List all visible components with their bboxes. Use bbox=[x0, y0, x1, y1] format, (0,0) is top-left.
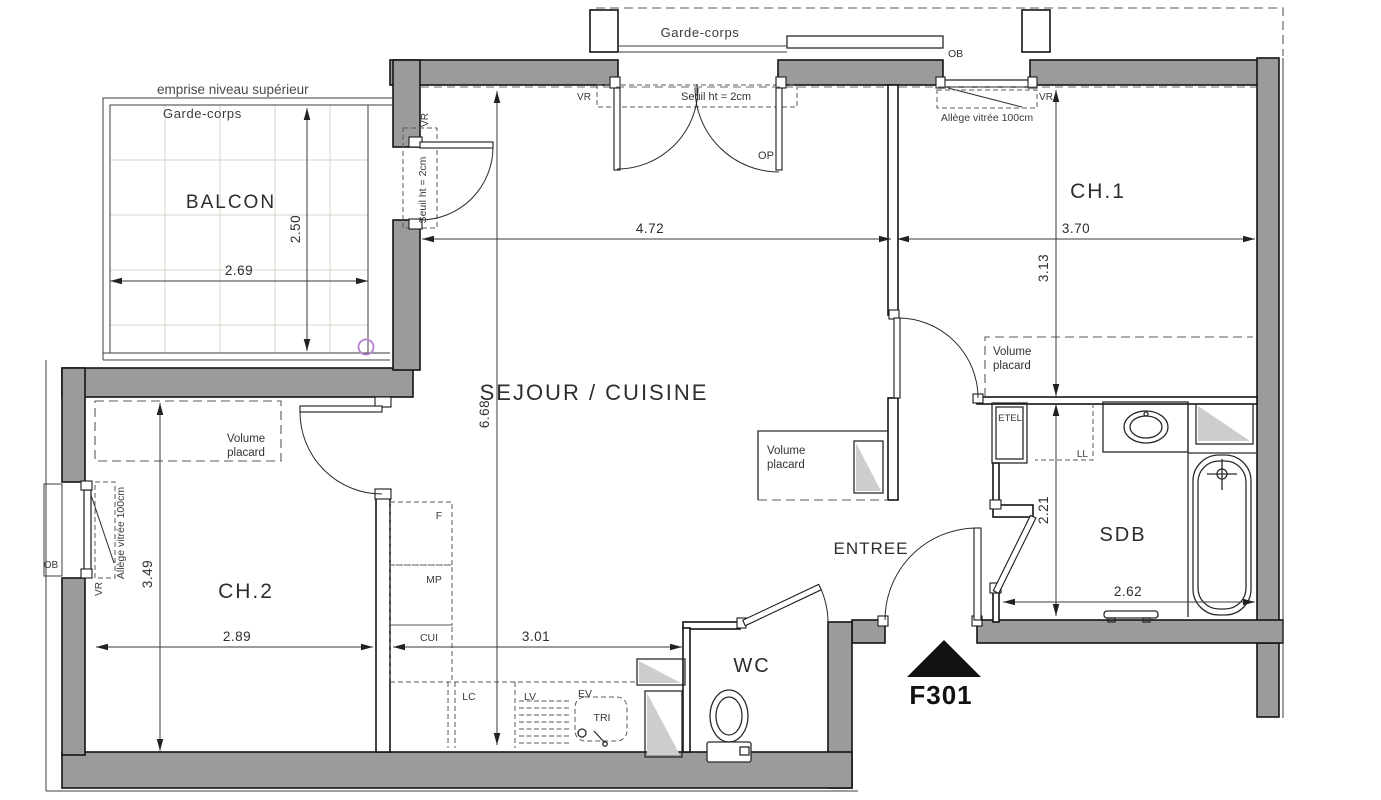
door-jamb bbox=[610, 77, 620, 88]
ob-label-top: OB bbox=[948, 48, 963, 60]
room-label-balcon: BALCON bbox=[186, 192, 276, 213]
floor-plan-page: Garde-corps OB emprise niveau supérieur bbox=[0, 0, 1381, 800]
wall-top-mid-segment bbox=[778, 60, 943, 85]
wall-sdb-west-lower bbox=[993, 592, 999, 622]
north-triangle-icon bbox=[907, 640, 981, 677]
allege-label: Allège vitrée 100cm bbox=[115, 487, 127, 579]
etel-cabinet bbox=[992, 403, 1027, 463]
door-ch2 bbox=[300, 397, 391, 499]
door-leaf-left bbox=[614, 88, 620, 170]
door-swing-arc bbox=[300, 412, 382, 494]
window-jamb bbox=[1028, 77, 1037, 88]
door-swing-arc bbox=[820, 587, 828, 623]
room-label-ch2: CH.2 bbox=[218, 580, 274, 603]
unit-id-label: F301 bbox=[909, 680, 972, 710]
dim-sdb-depth: 2.21 bbox=[1036, 496, 1051, 524]
room-label-wc: WC bbox=[733, 655, 770, 677]
door-leaf bbox=[300, 406, 382, 412]
wall-right-stub bbox=[1257, 643, 1279, 717]
door-swing-arc bbox=[898, 318, 978, 398]
basin-tap-icon bbox=[1144, 412, 1148, 416]
wall-sejour-ch1 bbox=[888, 85, 898, 315]
duct-triangle bbox=[856, 443, 881, 491]
ev-label: EV bbox=[578, 688, 592, 700]
windows: VR Seuil ht = 2cm OP Allège vitrée 100cm… bbox=[44, 77, 1053, 596]
door-leaf bbox=[743, 584, 822, 625]
volume-placard-label: placard bbox=[227, 447, 265, 459]
vr-label: VR bbox=[577, 92, 591, 103]
lc-label: LC bbox=[462, 691, 476, 703]
wall-sejour-hall bbox=[888, 398, 898, 500]
wall-wc-west bbox=[683, 628, 690, 752]
window-jamb bbox=[936, 77, 945, 88]
door-wc bbox=[737, 584, 828, 628]
allege-dashed-box bbox=[95, 482, 115, 578]
wall-ch2-north bbox=[62, 368, 413, 397]
dim-balcon-width: 2.69 bbox=[225, 263, 253, 278]
dim-balcon-depth: 2.50 bbox=[288, 215, 303, 243]
dim-ch1-width: 3.70 bbox=[1062, 221, 1090, 236]
door-jamb bbox=[776, 77, 786, 88]
wall-right bbox=[1257, 58, 1279, 643]
seuil-label: Seuil ht = 2cm bbox=[681, 91, 751, 103]
wall-wc-north bbox=[683, 622, 740, 629]
upper-level-outline: Garde-corps OB bbox=[590, 8, 1283, 60]
guardrail-label-balcony: Garde-corps bbox=[163, 106, 242, 121]
sink-tap-icon bbox=[603, 742, 607, 746]
volume-placard-label: placard bbox=[767, 459, 805, 471]
wall-top-left-segment bbox=[390, 60, 618, 85]
volume-placard-label: Volume bbox=[993, 346, 1031, 358]
op-label: OP bbox=[758, 150, 774, 162]
volume-placard-label: Volume bbox=[227, 433, 265, 445]
volume-placard-label: Volume bbox=[767, 445, 805, 457]
etel-label: ETEL bbox=[998, 413, 1022, 424]
floor-plan-svg: Garde-corps OB emprise niveau supérieur bbox=[0, 0, 1381, 800]
wall-sejour-west-lower bbox=[393, 220, 420, 370]
placards: Volume placard Volume placard Volume pla… bbox=[95, 337, 1253, 500]
room-label-sdb: SDB bbox=[1099, 524, 1146, 546]
window-glazing bbox=[943, 80, 1030, 87]
french-door-sejour: VR Seuil ht = 2cm OP bbox=[577, 77, 797, 172]
upper-pier-left bbox=[590, 10, 618, 52]
door-swing-arc bbox=[420, 147, 493, 220]
dim-sdb-width: 2.62 bbox=[1114, 584, 1142, 599]
balcony-drain-circle bbox=[359, 340, 374, 355]
seuil-label: Seuil ht = 2cm bbox=[417, 156, 429, 223]
room-label-entree: ENTREE bbox=[834, 539, 909, 558]
dim-ch1-depth: 3.13 bbox=[1036, 254, 1051, 282]
dim-cuisine-width: 3.01 bbox=[522, 629, 550, 644]
allege-dashed-box bbox=[937, 90, 1037, 108]
sink-tap-icon bbox=[578, 729, 586, 737]
fridge-box bbox=[390, 502, 452, 565]
window-opening-line bbox=[948, 88, 1022, 107]
wall-ch2-sejour bbox=[376, 496, 390, 752]
dim-ch2-width: 2.89 bbox=[223, 629, 251, 644]
wall-sejour-west-upper bbox=[393, 60, 420, 147]
vr-label: VR bbox=[1039, 92, 1053, 103]
vr-label: VR bbox=[94, 582, 105, 596]
vanity-counter bbox=[1103, 402, 1188, 452]
dim-ch2-depth: 3.49 bbox=[140, 560, 155, 588]
balcony: emprise niveau supérieur Garde-corps BAL… bbox=[103, 82, 393, 360]
mp-label: MP bbox=[426, 574, 442, 586]
room-label-sejour: SEJOUR / CUISINE bbox=[480, 380, 709, 405]
dishwasher-hatch bbox=[519, 701, 571, 743]
allege-label: Allège vitrée 100cm bbox=[941, 112, 1033, 124]
balcony-grid bbox=[110, 105, 368, 353]
door-leaf bbox=[993, 515, 1036, 593]
duct-triangle bbox=[647, 693, 680, 755]
vr-label: VR bbox=[420, 113, 431, 127]
duct-triangle bbox=[639, 661, 681, 683]
towel-rail bbox=[1104, 611, 1158, 618]
wall-west-lower bbox=[62, 578, 85, 755]
window-jamb bbox=[81, 481, 92, 490]
guardrail-label-top: Garde-corps bbox=[661, 25, 740, 40]
door-leaf-right bbox=[776, 88, 782, 170]
wall-top-right-segment bbox=[1030, 60, 1277, 85]
window-opening-line bbox=[91, 495, 114, 563]
upper-wall-band bbox=[787, 36, 943, 48]
upper-level-label: emprise niveau supérieur bbox=[157, 82, 309, 97]
fridge-label: F bbox=[436, 510, 442, 522]
washbasin-inner bbox=[1130, 416, 1162, 438]
door-leaf bbox=[894, 318, 900, 398]
room-label-ch1: CH.1 bbox=[1070, 180, 1126, 203]
wall-bottom-right bbox=[977, 620, 1283, 643]
sink-tap-icon bbox=[594, 731, 604, 742]
unit-marker: F301 bbox=[907, 640, 981, 710]
door-jamb bbox=[990, 500, 1001, 509]
upper-pier-right bbox=[1022, 10, 1050, 52]
door-leaf bbox=[420, 142, 493, 148]
hall-door bbox=[889, 310, 983, 403]
duct-triangle bbox=[1198, 406, 1250, 441]
cui-label: CUI bbox=[420, 632, 438, 644]
dim-sejour-width: 4.72 bbox=[636, 221, 664, 236]
tri-label: TRI bbox=[594, 712, 611, 724]
mp-box bbox=[390, 565, 452, 625]
window-jamb bbox=[81, 569, 92, 578]
volume-placard-label: placard bbox=[993, 360, 1031, 372]
ob-label: OB bbox=[44, 560, 59, 571]
wc-fixtures bbox=[707, 690, 751, 762]
wall-sdb-west-upper bbox=[993, 463, 999, 505]
ll-label: LL bbox=[1077, 449, 1089, 460]
window-glazing bbox=[84, 490, 91, 570]
lv-label: LV bbox=[524, 691, 536, 703]
exterior-walls bbox=[62, 58, 1283, 788]
toilet-bowl-inner bbox=[716, 697, 742, 735]
wall-west-upper bbox=[62, 368, 85, 482]
toilet-tank bbox=[707, 742, 751, 762]
door-leaf bbox=[974, 528, 981, 620]
window-ch1: Allège vitrée 100cm VR bbox=[936, 77, 1053, 124]
balcony-guardrail bbox=[103, 98, 393, 360]
door-jamb bbox=[878, 616, 888, 626]
